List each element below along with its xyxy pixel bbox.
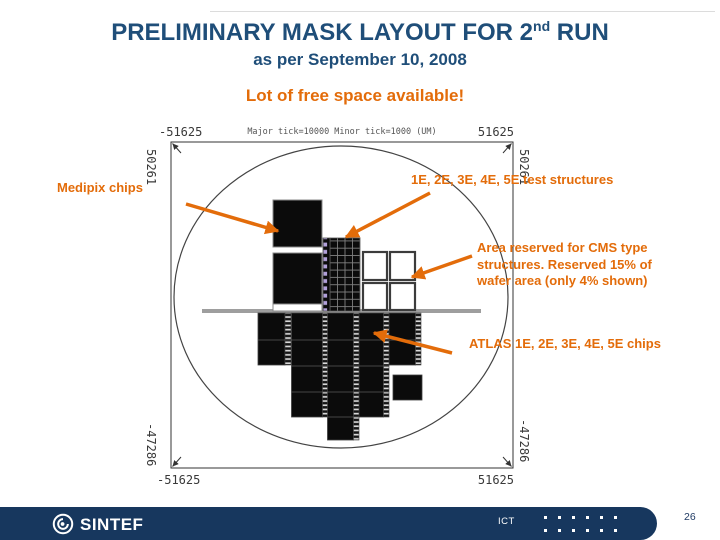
test-structures-label: 1E, 2E, 3E, 4E, 5E test structures: [411, 172, 613, 187]
footer-dot: [544, 529, 547, 532]
footer-dot: [614, 529, 617, 532]
footer-dot: [614, 516, 617, 519]
slide: PRELIMINARY MASK LAYOUT FOR 2nd RUN as p…: [0, 0, 720, 540]
footer-dot: [586, 516, 589, 519]
axis-tick-info: Major tick=10000 Minor tick=1000 (UM): [171, 127, 513, 137]
axis-coord-left-top: 50261: [144, 149, 158, 185]
test-structures-grid: [323, 238, 360, 311]
axis-coord-top-right: 51625: [468, 125, 514, 139]
footer-dot: [572, 529, 575, 532]
atlas-chips: [258, 313, 422, 440]
page-number: 26: [684, 511, 696, 523]
cms-reserved-squares: [363, 252, 415, 310]
test-structures-arrow: [346, 193, 430, 237]
cms-label: Area reserved for CMS type structures. R…: [477, 240, 677, 290]
footer-dot: [600, 529, 603, 532]
axis-coord-bottom-left: -51625: [157, 473, 200, 487]
footer-dot: [600, 516, 603, 519]
footer-dot: [572, 516, 575, 519]
medipix-label: Medipix chips: [57, 180, 143, 195]
sintef-logo-icon: [52, 513, 74, 535]
atlas-label: ATLAS 1E, 2E, 3E, 4E, 5E chips: [469, 336, 661, 351]
footer-dot: [558, 529, 561, 532]
footer-dots-decoration: [544, 516, 617, 532]
medipix-arrow: [186, 204, 278, 231]
axis-coord-right-bottom: -47286: [517, 419, 531, 462]
axis-coord-bottom-right: 51625: [468, 473, 514, 487]
footer-dot: [586, 529, 589, 532]
footer-dot: [544, 516, 547, 519]
footer-department: ICT: [498, 516, 515, 527]
sintef-logo-text: SINTEF: [80, 515, 143, 535]
cms-arrow: [412, 256, 472, 277]
medipix-chips: [273, 200, 322, 311]
axis-coord-left-bottom: -47286: [144, 423, 158, 466]
footer-dot: [558, 516, 561, 519]
